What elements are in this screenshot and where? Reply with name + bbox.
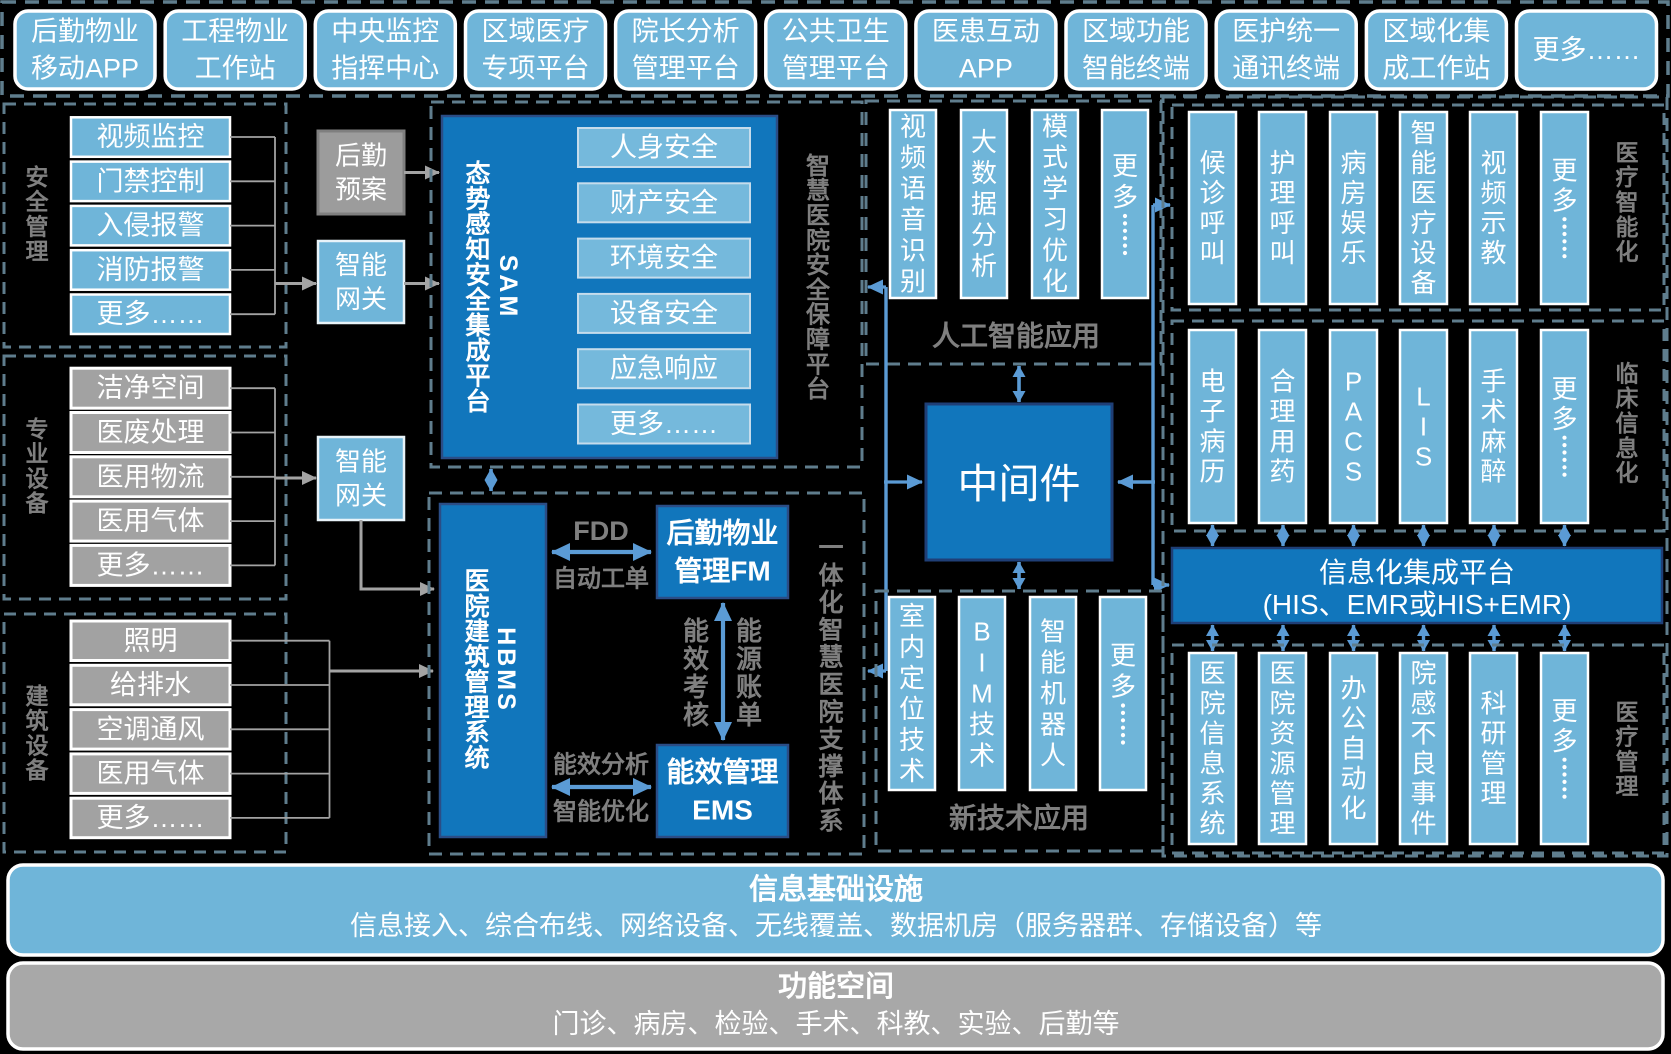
svg-text:指挥中心: 指挥中心: [331, 54, 439, 84]
svg-text:信息化集成平台: 信息化集成平台: [1319, 557, 1515, 588]
svg-text:智能医疗设备: 智能医疗设备: [1410, 118, 1436, 298]
svg-text:后勤: 后勤: [335, 141, 387, 171]
svg-text:成工作站: 成工作站: [1382, 54, 1490, 84]
svg-text:更多: 更多: [1551, 696, 1577, 756]
svg-text:公共卫生: 公共卫生: [782, 17, 890, 47]
svg-text:更多……: 更多……: [610, 409, 718, 439]
svg-text:智能终端: 智能终端: [1082, 54, 1190, 84]
svg-text:自动工单: 自动工单: [553, 565, 649, 593]
svg-text:建筑设备: 建筑设备: [25, 683, 50, 783]
svg-text:更多: 更多: [1551, 374, 1577, 434]
svg-text:能源账单: 能源账单: [736, 616, 762, 730]
svg-text:网关: 网关: [335, 481, 387, 511]
svg-text:态势感知安全集成平台: 态势感知安全集成平台: [464, 160, 491, 416]
svg-text:视频语音识别: 视频语音识别: [900, 112, 926, 297]
svg-text:智能: 智能: [335, 250, 387, 280]
svg-text:预案: 预案: [335, 175, 387, 205]
svg-text:医院资源管理: 医院资源管理: [1269, 659, 1295, 839]
svg-text:区域化集: 区域化集: [1382, 17, 1490, 47]
svg-text:医用物流: 医用物流: [97, 462, 205, 492]
svg-text:更多……: 更多……: [97, 803, 205, 833]
svg-text:后勤物业: 后勤物业: [31, 17, 139, 47]
svg-text:SAM: SAM: [494, 255, 522, 320]
svg-text:人工智能应用: 人工智能应用: [932, 320, 1100, 352]
svg-text:候诊呼叫: 候诊呼叫: [1199, 148, 1225, 268]
svg-text:工作站: 工作站: [195, 54, 276, 84]
svg-text:入侵报警: 入侵报警: [97, 211, 205, 241]
svg-text:更多……: 更多……: [97, 550, 205, 580]
svg-text:区域功能: 区域功能: [1082, 17, 1190, 47]
svg-text:大数据分析: 大数据分析: [971, 127, 997, 281]
svg-text:HBMS: HBMS: [492, 627, 520, 713]
svg-text:院长分析: 院长分析: [632, 17, 740, 47]
svg-text:手术麻醉: 手术麻醉: [1480, 367, 1506, 487]
svg-text:合理用药: 合理用药: [1269, 367, 1295, 487]
svg-text:智能: 智能: [335, 447, 387, 477]
svg-text:院感不良事件: 院感不良事件: [1410, 659, 1436, 839]
svg-text:能效考核: 能效考核: [683, 616, 709, 730]
svg-text:管理平台: 管理平台: [782, 54, 890, 84]
svg-text:信息接入、综合布线、网络设备、无线覆盖、数据机房（服务器群、: 信息接入、综合布线、网络设备、无线覆盖、数据机房（服务器群、存储设备）等: [350, 911, 1322, 941]
svg-text:PACS: PACS: [1344, 367, 1363, 487]
svg-text:网关: 网关: [335, 284, 387, 314]
svg-text:更多: 更多: [1112, 151, 1138, 212]
svg-text:智慧医院安全保障平台: 智慧医院安全保障平台: [805, 152, 831, 403]
svg-text:中央监控: 中央监控: [331, 17, 439, 47]
svg-text:能效管理: 能效管理: [666, 756, 778, 788]
svg-text:模式学习优化: 模式学习优化: [1042, 112, 1068, 297]
svg-text:医用气体: 医用气体: [97, 759, 205, 789]
svg-text:医疗智能化: 医疗智能化: [1616, 139, 1639, 264]
svg-text:电子病历: 电子病历: [1199, 367, 1225, 487]
svg-text:工程物业: 工程物业: [181, 17, 289, 47]
svg-text:财产安全: 财产安全: [610, 188, 718, 218]
svg-text:安全管理: 安全管理: [25, 164, 50, 264]
svg-text:照明: 照明: [124, 626, 178, 656]
svg-text:FDD: FDD: [573, 516, 629, 546]
svg-text:给排水: 给排水: [110, 670, 191, 700]
svg-text:应急响应: 应急响应: [610, 354, 718, 384]
svg-text:智能机器人: 智能机器人: [1040, 617, 1066, 771]
svg-text:设备安全: 设备安全: [610, 298, 718, 328]
svg-text:视频监控: 视频监控: [97, 122, 205, 152]
svg-text:移动APP: 移动APP: [31, 54, 139, 84]
svg-text:专业设备: 专业设备: [25, 416, 50, 516]
svg-text:管理FM: 管理FM: [674, 555, 770, 587]
svg-text:护理呼叫: 护理呼叫: [1269, 148, 1295, 268]
svg-text:更多……: 更多……: [97, 299, 205, 329]
svg-text:能效分析: 能效分析: [553, 751, 649, 779]
svg-text:室内定位技术: 室内定位技术: [899, 601, 925, 786]
svg-text:科研管理: 科研管理: [1480, 689, 1506, 809]
svg-text:功能空间: 功能空间: [778, 969, 894, 1003]
svg-text:洁净空间: 洁净空间: [97, 373, 205, 403]
svg-text:EMS: EMS: [692, 795, 753, 826]
svg-text:新技术应用: 新技术应用: [949, 802, 1089, 834]
svg-text:医院信息系统: 医院信息系统: [1199, 659, 1225, 839]
svg-text:医用气体: 医用气体: [97, 506, 205, 536]
svg-text:APP: APP: [959, 54, 1013, 84]
svg-text:(HIS、EMR或HIS+EMR): (HIS、EMR或HIS+EMR): [1263, 589, 1572, 620]
svg-text:智能优化: 智能优化: [553, 798, 649, 826]
svg-text:通讯终端: 通讯终端: [1232, 54, 1340, 84]
svg-text:后勤物业: 后勤物业: [666, 518, 778, 549]
svg-text:医废处理: 医废处理: [97, 418, 205, 448]
svg-text:专项平台: 专项平台: [482, 54, 590, 84]
svg-text:临床信息化: 临床信息化: [1616, 360, 1639, 485]
svg-text:视频示教: 视频示教: [1480, 148, 1506, 268]
svg-text:管理平台: 管理平台: [632, 54, 740, 84]
svg-text:空调通风: 空调通风: [97, 714, 205, 744]
svg-text:更多: 更多: [1110, 640, 1136, 701]
svg-text:一体化智慧医院支撑体系: 一体化智慧医院支撑体系: [818, 535, 844, 836]
svg-text:医疗管理: 医疗管理: [1616, 699, 1639, 799]
svg-text:医患互动: 医患互动: [932, 17, 1040, 47]
svg-text:信息基础设施: 信息基础设施: [749, 872, 923, 906]
svg-text:区域医疗: 区域医疗: [482, 17, 590, 47]
svg-text:消防报警: 消防报警: [97, 255, 205, 285]
svg-text:环境安全: 环境安全: [610, 243, 718, 273]
svg-text:门禁控制: 门禁控制: [97, 166, 205, 196]
svg-text:医院建筑管理系统: 医院建筑管理系统: [464, 568, 489, 773]
svg-text:人身安全: 人身安全: [610, 133, 718, 163]
svg-text:病房娱乐: 病房娱乐: [1340, 148, 1366, 268]
svg-text:更多……: 更多……: [1533, 35, 1641, 65]
svg-text:医护统一: 医护统一: [1232, 17, 1340, 47]
svg-text:门诊、病房、检验、手术、科教、实验、后勤等: 门诊、病房、检验、手术、科教、实验、后勤等: [553, 1009, 1120, 1039]
svg-text:更多: 更多: [1551, 156, 1577, 216]
svg-text:办公自动化: 办公自动化: [1340, 674, 1366, 824]
svg-text:中间件: 中间件: [958, 461, 1081, 507]
